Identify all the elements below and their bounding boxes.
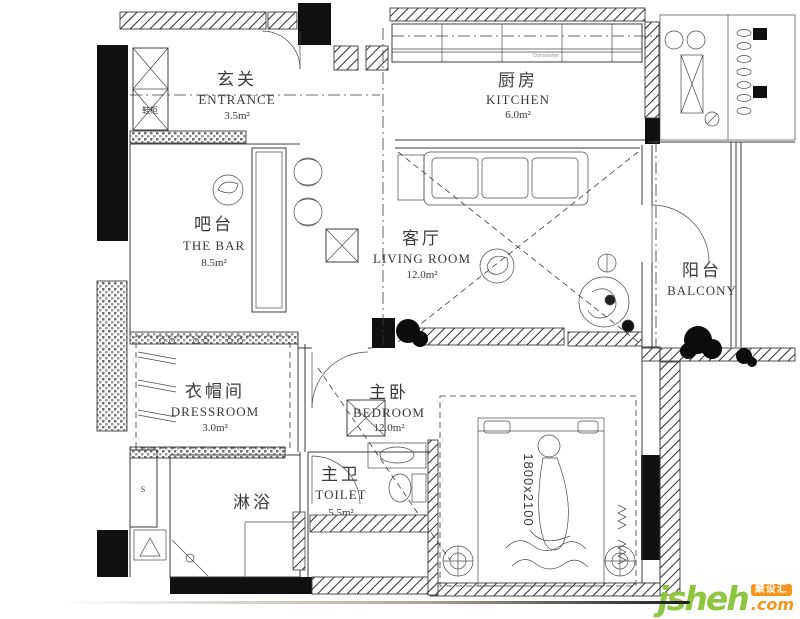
living-room: 客厅 LIVING ROOM 12.0m² [373, 152, 638, 347]
living-label-cn: 客厅 [402, 229, 442, 248]
radiator-coils [618, 505, 626, 564]
kitchen-label-cn: 厨房 [498, 71, 538, 90]
bar-room: 吧台 THE BAR 8.5m² [183, 148, 358, 312]
bar-stool [294, 198, 322, 226]
jsheh-brand-text: jsheh [657, 582, 747, 615]
dishwasher-label: Dishwasher [533, 53, 559, 59]
bar-label-en: THE BAR [183, 238, 245, 253]
bedroom: 主卧 BEDROOM 12.0m² 1 [318, 368, 636, 586]
bar-plant [213, 175, 243, 205]
armchair-person [579, 277, 634, 332]
shoe-cabinet-label: 鞋柜 [142, 105, 158, 115]
living-label-en: LIVING ROOM [373, 251, 471, 266]
bar-stool [294, 158, 322, 186]
balcony-label-en: BALCONY [667, 283, 737, 298]
coffee-table-plant [480, 249, 514, 283]
column-x-symbol [326, 229, 358, 262]
shower-label-cn: 淋浴 [233, 493, 273, 512]
axis-lines [130, 28, 658, 347]
living-label-area: 12.0m² [406, 269, 438, 281]
bedroom-label-en: BEDROOM [353, 405, 425, 420]
dressroom-label-en: DRESSROOM [171, 404, 259, 419]
jsheh-tld: .com [751, 597, 794, 613]
wall-lines [130, 140, 795, 583]
entrance-label-en: ENTRANCE [198, 92, 275, 107]
balcony-label-cn: 阳台 [682, 261, 722, 280]
entrance-room: 鞋柜 玄关 ENTRANCE 3.5m² [133, 48, 276, 130]
kitchen-room: Dishwasher 厨房 KITCHEN 6.0m² [392, 24, 642, 121]
balcony: 阳台 BALCONY [667, 261, 757, 367]
entrance-label-cn: 玄关 [217, 70, 257, 89]
floor-plan-page: 鞋柜 玄关 ENTRANCE 3.5m² Dishwasher 厨房 KITCH… [0, 0, 800, 619]
shower-room: 淋浴 S [134, 485, 300, 577]
s-marker: S [141, 485, 145, 494]
tv-cabinet [416, 328, 564, 345]
bedroom-label-cn: 主卧 [369, 383, 409, 402]
bottom-divider-line [60, 601, 690, 604]
toilet-label-en: TOILET [315, 487, 366, 502]
wc-toilet [389, 474, 426, 502]
small-sink-icon [134, 530, 166, 560]
floor-plan-drawing: 鞋柜 玄关 ENTRANCE 3.5m² Dishwasher 厨房 KITCH… [0, 0, 800, 607]
dressroom: 衣帽间 DRESSROOM 3.0m² [136, 336, 290, 448]
bedside-marker-left [443, 546, 473, 576]
sofa [398, 152, 588, 205]
bedside-marker-right [605, 546, 635, 576]
toilet-room: 主卫 TOILET 5.5m² [310, 443, 428, 532]
jsheh-watermark-logo[interactable]: jsheh 聚设汇 .com [657, 582, 794, 615]
washbasin [368, 443, 426, 468]
dressroom-label-cn: 衣帽间 [185, 382, 245, 401]
bedroom-label-area: 12.0m² [373, 422, 405, 434]
entrance-label-area: 3.5m² [224, 110, 250, 122]
bathtub-edge [310, 515, 428, 532]
plant-near-tv [396, 319, 428, 347]
person-on-bed [506, 435, 588, 569]
toilet-label-cn: 主卫 [321, 465, 361, 484]
bed [478, 418, 604, 586]
floor-lamp [598, 254, 616, 272]
bed-size-dimension: 1800x2100 [521, 453, 536, 526]
kitchen-label-area: 6.0m² [505, 109, 531, 121]
dressroom-label-area: 3.0m² [202, 422, 228, 434]
bar-label-area: 8.5m² [201, 257, 227, 269]
bar-label-cn: 吧台 [194, 215, 234, 234]
kitchen-label-en: KITCHEN [486, 92, 550, 107]
utility-corner [660, 15, 795, 140]
